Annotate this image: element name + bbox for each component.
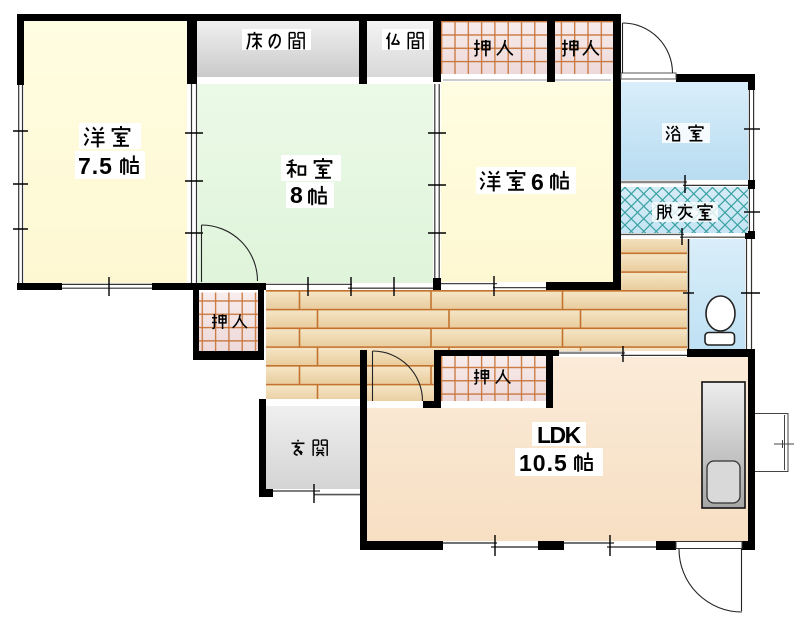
svg-text:8: 8 (290, 182, 303, 208)
svg-text:10.5: 10.5 (519, 450, 568, 476)
svg-text:6: 6 (531, 169, 544, 195)
svg-text:LDK: LDK (537, 422, 582, 448)
svg-text:7.5: 7.5 (78, 153, 113, 179)
